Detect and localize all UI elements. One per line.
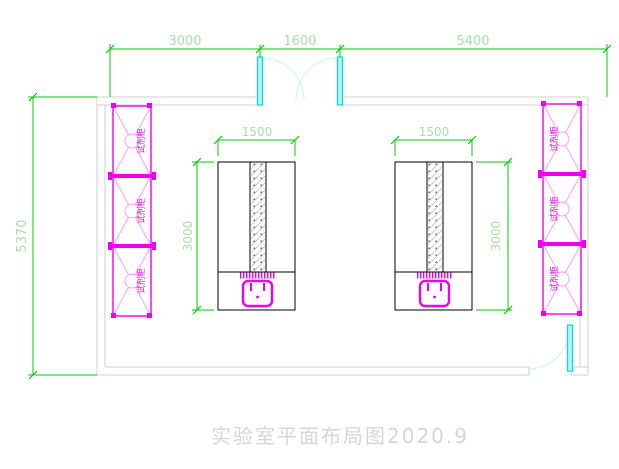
dim-label-top-left: 3000 bbox=[168, 34, 201, 49]
cabinet-label: 试剂柜 bbox=[549, 266, 560, 292]
cabinet-label: 试剂柜 bbox=[549, 196, 560, 222]
door-swing-arc bbox=[528, 327, 570, 369]
reagent-cabinets-left: 试剂柜 试剂柜 试剂柜 bbox=[108, 103, 156, 318]
lab-bench-left bbox=[218, 162, 295, 310]
dim-label-top-mid: 1600 bbox=[283, 34, 316, 49]
bench-shelf-hatch bbox=[428, 163, 442, 271]
cad-floorplan-canvas: 试剂柜 试剂柜 试剂柜 试剂柜 试剂柜 bbox=[0, 0, 619, 469]
dim-label-top-right: 5400 bbox=[456, 34, 489, 49]
dim-label-left: 5370 bbox=[15, 219, 30, 252]
bench-shelf-hatch bbox=[251, 163, 265, 271]
door-leaf bbox=[568, 325, 573, 371]
lab-bench-right bbox=[395, 162, 472, 310]
bench-grate bbox=[240, 273, 275, 279]
reagent-cabinets-right: 试剂柜 试剂柜 试剂柜 bbox=[538, 101, 586, 316]
dim-label-bench-depth: 3000 bbox=[181, 221, 195, 252]
door-leaf bbox=[258, 57, 263, 105]
cabinet-label: 试剂柜 bbox=[136, 268, 147, 294]
dim-label-bench-width: 1500 bbox=[242, 125, 273, 139]
sink-symbol bbox=[243, 281, 272, 306]
drawing-title: 实验室平面布局图2020.9 bbox=[211, 424, 469, 448]
cabinet-label: 试剂柜 bbox=[136, 128, 147, 154]
top-double-door bbox=[258, 57, 343, 105]
room-walls bbox=[97, 97, 588, 375]
door-leaf bbox=[338, 57, 343, 105]
floorplan-drawing: 试剂柜 试剂柜 试剂柜 试剂柜 试剂柜 bbox=[0, 0, 619, 469]
cabinet-label: 试剂柜 bbox=[549, 126, 560, 152]
bench-grate bbox=[417, 273, 452, 279]
dim-label-bench-width: 1500 bbox=[419, 125, 450, 139]
dimension-left: 5370 bbox=[15, 93, 97, 379]
bottom-right-door bbox=[528, 325, 573, 371]
cabinet-label: 试剂柜 bbox=[136, 198, 147, 224]
dimension-top: 3000 1600 5400 bbox=[106, 34, 611, 97]
dim-label-bench-depth: 3000 bbox=[489, 221, 503, 252]
door-swing-arc bbox=[262, 58, 304, 100]
door-swing-arc bbox=[296, 58, 338, 100]
sink-symbol bbox=[420, 281, 449, 306]
